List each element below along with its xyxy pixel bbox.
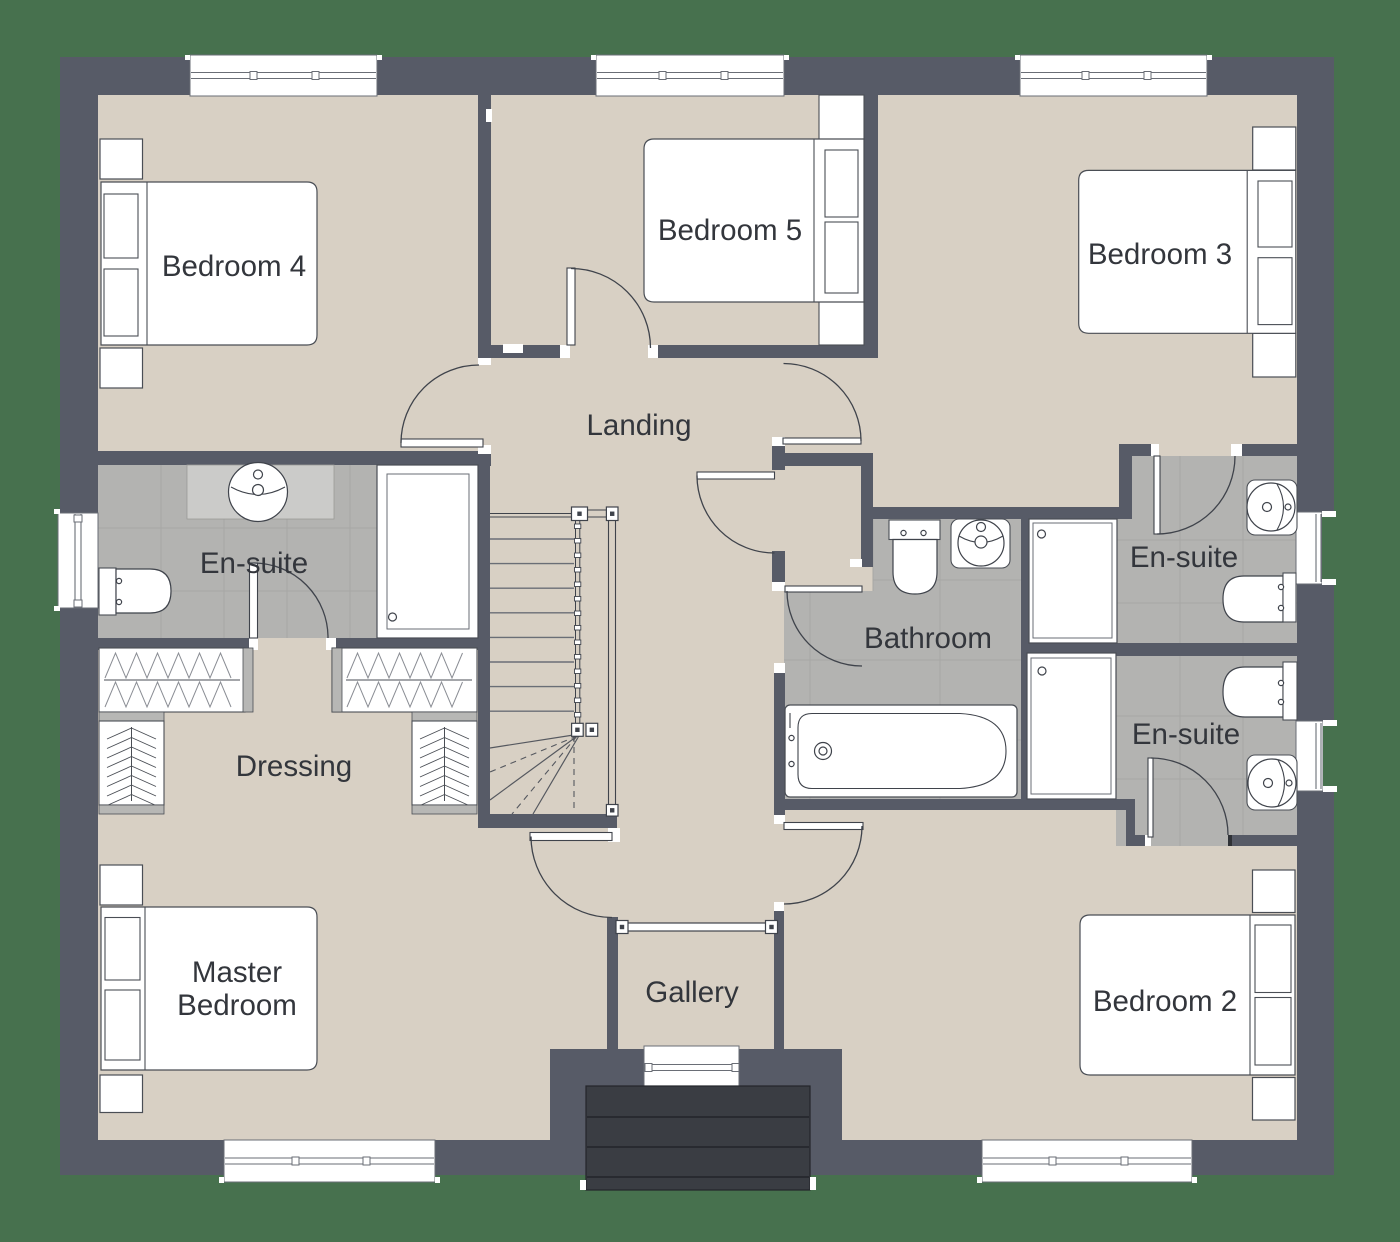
svg-text:En-suite: En-suite: [1132, 718, 1240, 751]
svg-text:Dressing: Dressing: [236, 750, 352, 783]
svg-text:Gallery: Gallery: [645, 976, 739, 1009]
svg-text:En-suite: En-suite: [200, 547, 308, 580]
svg-text:Bedroom 3: Bedroom 3: [1088, 238, 1232, 271]
svg-text:Bedroom 4: Bedroom 4: [162, 250, 306, 283]
svg-text:Bedroom 2: Bedroom 2: [1093, 985, 1237, 1018]
svg-text:Bathroom: Bathroom: [864, 622, 992, 655]
svg-text:En-suite: En-suite: [1130, 541, 1238, 574]
svg-text:Bedroom 5: Bedroom 5: [658, 214, 802, 247]
svg-text:Master: Master: [192, 956, 282, 989]
svg-text:Bedroom: Bedroom: [177, 989, 297, 1022]
svg-text:Landing: Landing: [587, 409, 692, 442]
